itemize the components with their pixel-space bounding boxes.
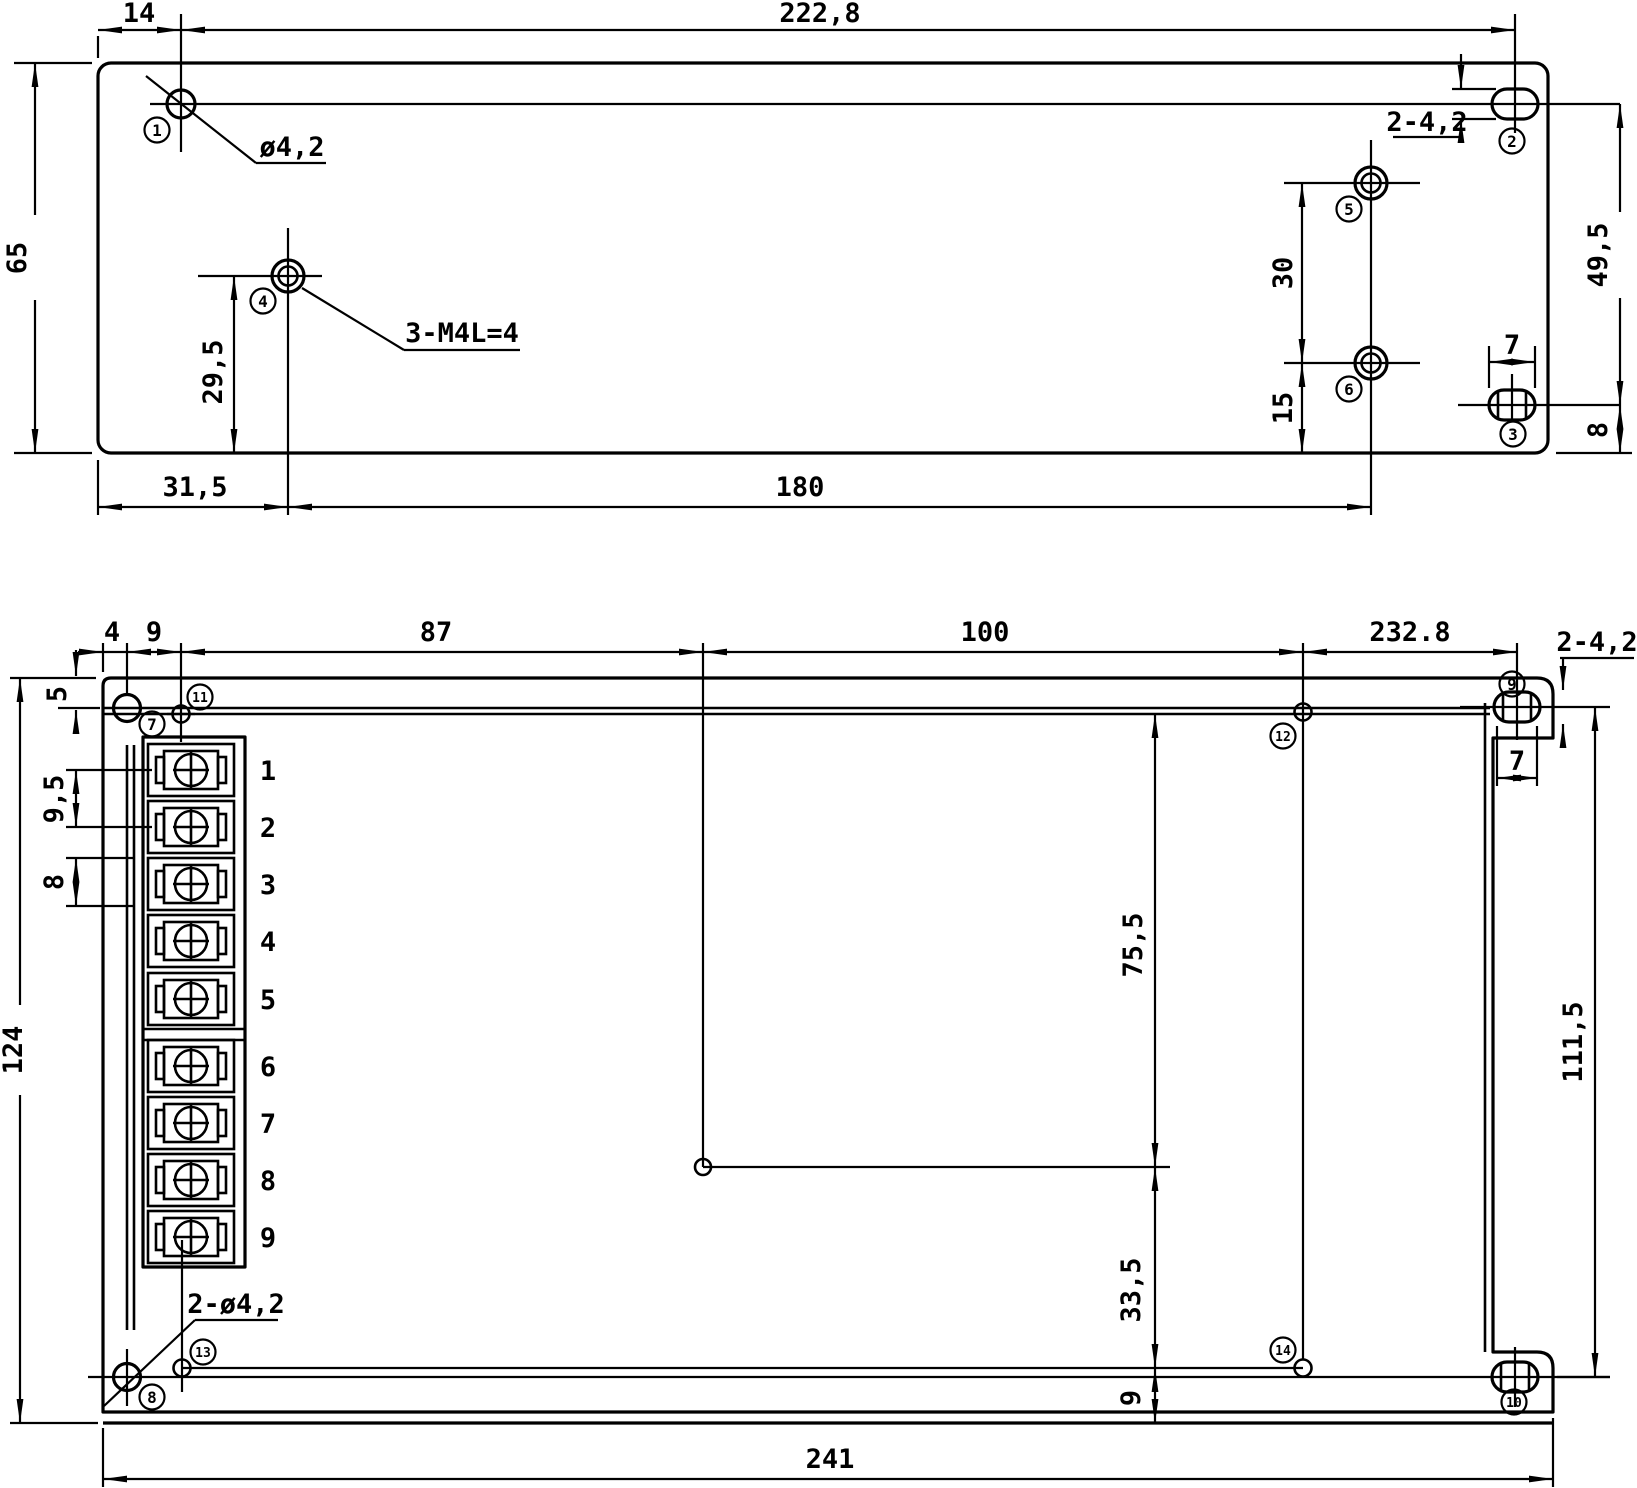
terminal-number-9: 9 [260,1223,276,1254]
dim-75-5: 75,5 [1118,912,1149,977]
svg-text:4: 4 [258,292,268,311]
terminal-number-2: 2 [260,813,276,844]
label-hole-diameter: ø4,2 [259,132,324,163]
terminal-number-8: 8 [260,1166,276,1197]
terminal-number-3: 3 [260,870,276,901]
dim-49-5: 49,5 [1583,222,1614,287]
svg-text:10: 10 [1506,1396,1522,1411]
hole-marker-4: 4 [251,289,276,314]
terminal-screw-3 [148,858,234,910]
hole-marker-14: 14 [1271,1338,1296,1363]
hole-marker-7: 7 [140,712,165,737]
dim-100: 100 [961,617,1010,648]
terminal-screw-5 [148,973,234,1025]
hole-marker-13: 13 [191,1340,216,1365]
terminal-screw-2 [148,801,234,853]
terminal-screw-1 [148,744,234,796]
dim-8-edge: 8 [1583,422,1614,438]
dim-87: 87 [420,617,453,648]
dim-33-5: 33,5 [1116,1257,1147,1322]
svg-text:5: 5 [1344,200,1354,219]
dim-8-pitch: 8 [39,874,70,890]
svg-text:14: 14 [1275,1344,1291,1359]
hole-marker-5: 5 [1337,197,1362,222]
dim-7-slot-bottom: 7 [1509,746,1525,777]
terminal-screw-4 [148,915,234,967]
label-through-holes: 2-ø4,2 [187,1289,285,1320]
hole-marker-1: 1 [145,118,170,143]
bottom-view-outline [103,678,1553,1412]
dim-222-8: 222,8 [779,0,860,29]
dim-124: 124 [0,1026,29,1075]
top-view-outline [98,63,1548,453]
svg-text:3: 3 [1508,425,1518,444]
dim-241: 241 [806,1444,855,1475]
dim-15: 15 [1268,392,1299,425]
label-slot-top: 2-4,2 [1386,107,1467,138]
drawing-page: 1 ø4,2 2 2-4,2 14 222,8 65 [0,0,1637,1488]
label-tapped-holes: 3-M4L=4 [405,318,519,349]
dim-5: 5 [42,686,73,702]
svg-text:7: 7 [147,715,157,734]
svg-text:2: 2 [1507,132,1517,151]
terminal-screw-8 [148,1154,234,1206]
engineering-drawing: 1 ø4,2 2 2-4,2 14 222,8 65 [0,0,1637,1488]
dim-7-slot: 7 [1504,330,1520,361]
terminal-number-6: 6 [260,1052,276,1083]
dim-29-5: 29,5 [198,339,229,404]
hole-marker-9: 9 [1500,672,1525,697]
dim-9-5: 9,5 [39,775,70,824]
hole-marker-12: 12 [1271,724,1296,749]
terminal-number-4: 4 [260,927,276,958]
svg-text:9: 9 [1507,675,1517,694]
svg-text:8: 8 [147,1388,157,1407]
svg-text:1: 1 [152,121,162,140]
terminal-number-5: 5 [260,985,276,1016]
dim-9: 9 [146,617,162,648]
terminal-number-1: 1 [260,756,276,787]
hole-marker-2: 2 [1500,129,1525,154]
bottom-view: 7 11 12 9 2-4,2 7 [0,617,1637,1487]
terminal-number-7: 7 [260,1109,276,1140]
hole-marker-3: 3 [1501,422,1526,447]
dim-14: 14 [123,0,156,29]
dim-30: 30 [1268,257,1299,290]
svg-text:6: 6 [1344,380,1354,399]
svg-text:13: 13 [195,1346,211,1361]
dim-232-8: 232.8 [1369,617,1450,648]
svg-text:12: 12 [1275,730,1291,745]
terminal-screw-6 [148,1040,234,1092]
dim-4: 4 [104,617,120,648]
hole-marker-8: 8 [140,1385,165,1410]
dim-180: 180 [776,472,825,503]
dim-111-5: 111,5 [1558,1001,1589,1082]
hole-marker-6: 6 [1337,377,1362,402]
terminal-screw-7 [148,1097,234,1149]
top-view: 1 ø4,2 2 2-4,2 14 222,8 65 [2,0,1632,515]
dim-31-5: 31,5 [162,472,227,503]
label-slot-bottom: 2-4,2 [1556,627,1637,658]
terminal-screw-9 [148,1211,234,1263]
hole-marker-11: 11 [188,685,213,710]
dim-9-bottom: 9 [1116,1390,1147,1406]
svg-text:11: 11 [192,691,208,706]
dim-65: 65 [2,242,33,275]
